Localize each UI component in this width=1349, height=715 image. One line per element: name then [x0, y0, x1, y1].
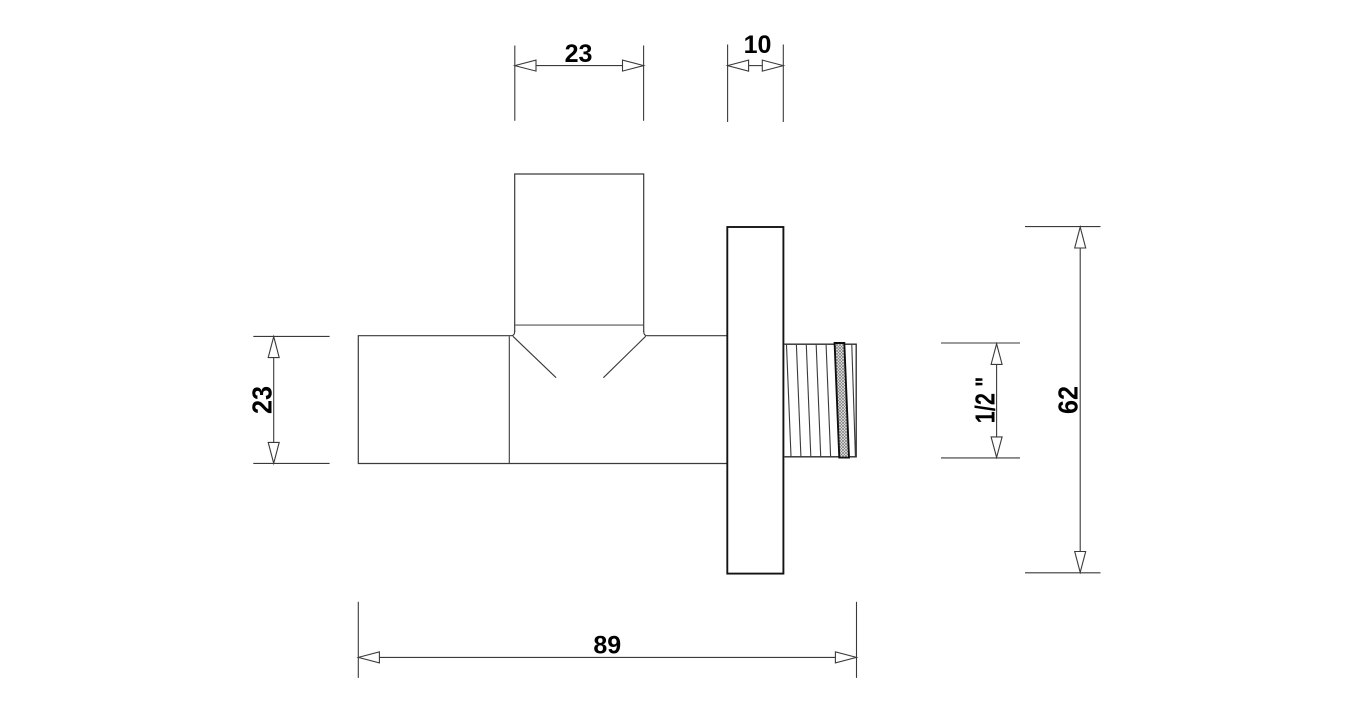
- svg-text:62: 62: [1052, 386, 1084, 414]
- svg-text:23: 23: [565, 40, 593, 68]
- svg-text:23: 23: [246, 386, 278, 414]
- svg-text:10: 10: [744, 31, 772, 59]
- svg-text:89: 89: [593, 632, 621, 660]
- svg-text:1/2 ": 1/2 ": [970, 377, 1001, 424]
